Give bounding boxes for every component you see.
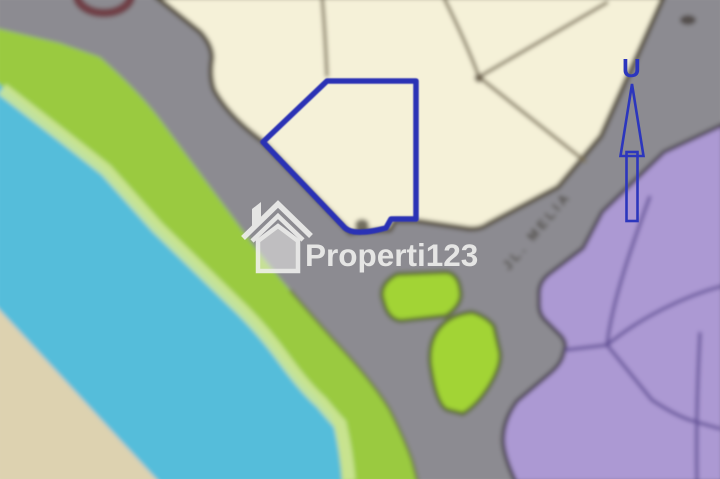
svg-text:Properti123: Properti123 [305, 237, 478, 273]
svg-text:U: U [622, 53, 641, 83]
